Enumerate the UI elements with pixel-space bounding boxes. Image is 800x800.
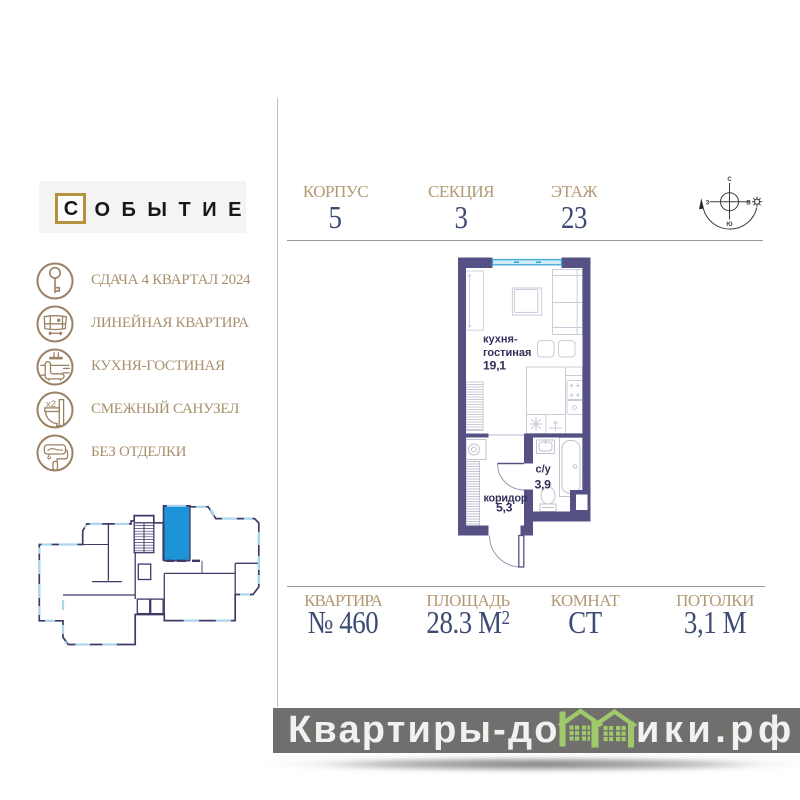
svg-text:3,9: 3,9: [535, 478, 552, 492]
svg-text:гостиная: гостиная: [483, 347, 531, 359]
svg-text:кухня-: кухня-: [483, 334, 518, 346]
svg-text:В: В: [746, 201, 751, 207]
svg-text:5,3: 5,3: [496, 501, 513, 515]
svg-text:З: З: [706, 200, 710, 206]
svg-text:19,1: 19,1: [483, 359, 506, 373]
svg-text:С: С: [727, 177, 732, 183]
svg-text:Ю: Ю: [726, 222, 732, 228]
svg-text:с/у: с/у: [536, 464, 552, 476]
